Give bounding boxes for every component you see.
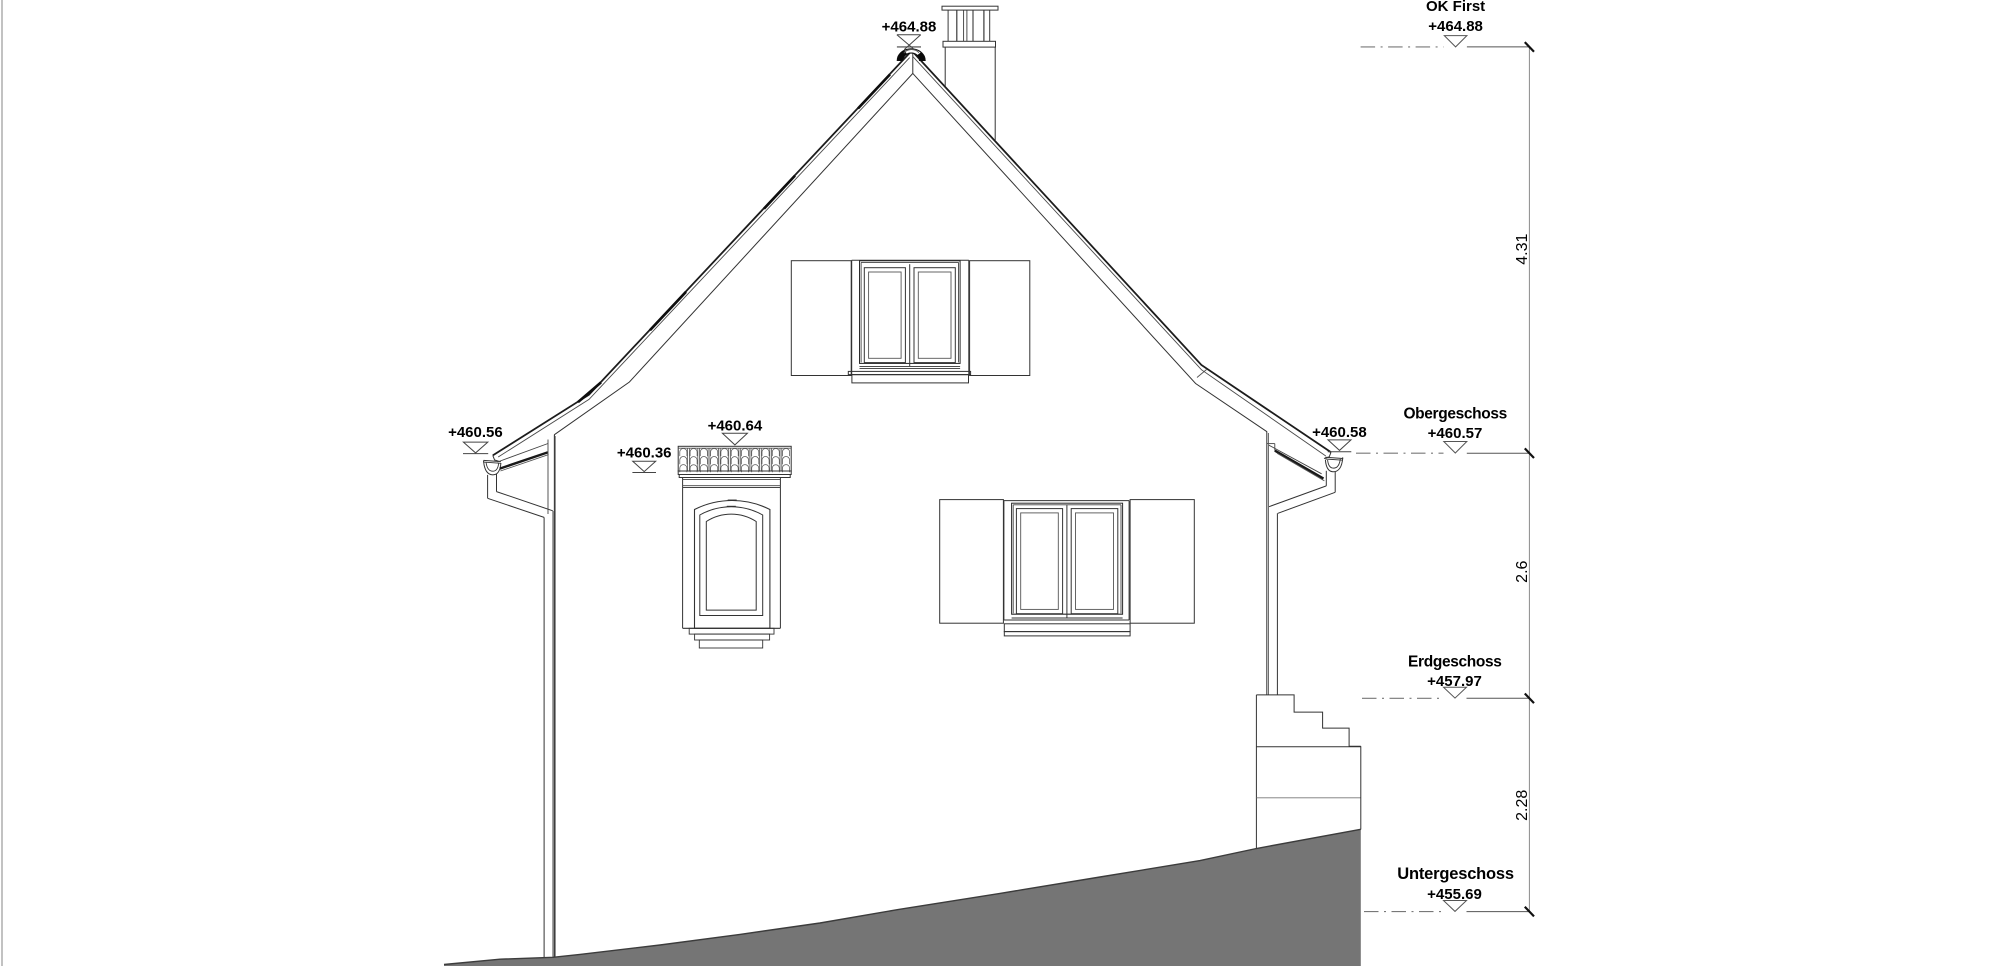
svg-text:OK First: OK First xyxy=(1426,0,1485,15)
svg-text:+464.88: +464.88 xyxy=(1428,18,1483,35)
svg-text:2.28: 2.28 xyxy=(1514,790,1531,821)
svg-text:4.31: 4.31 xyxy=(1514,234,1531,265)
svg-text:+460.64: +460.64 xyxy=(708,418,763,435)
svg-text:Untergeschoss: Untergeschoss xyxy=(1397,865,1514,883)
svg-text:Obergeschoss: Obergeschoss xyxy=(1403,405,1506,422)
svg-text:Erdgeschoss: Erdgeschoss xyxy=(1408,654,1502,671)
svg-text:+460.36: +460.36 xyxy=(617,444,672,461)
svg-text:+464.88: +464.88 xyxy=(882,18,937,35)
svg-text:+460.58: +460.58 xyxy=(1312,424,1367,441)
svg-text:+460.57: +460.57 xyxy=(1428,425,1483,442)
svg-text:2.6: 2.6 xyxy=(1514,560,1531,582)
svg-text:+460.56: +460.56 xyxy=(448,424,503,441)
